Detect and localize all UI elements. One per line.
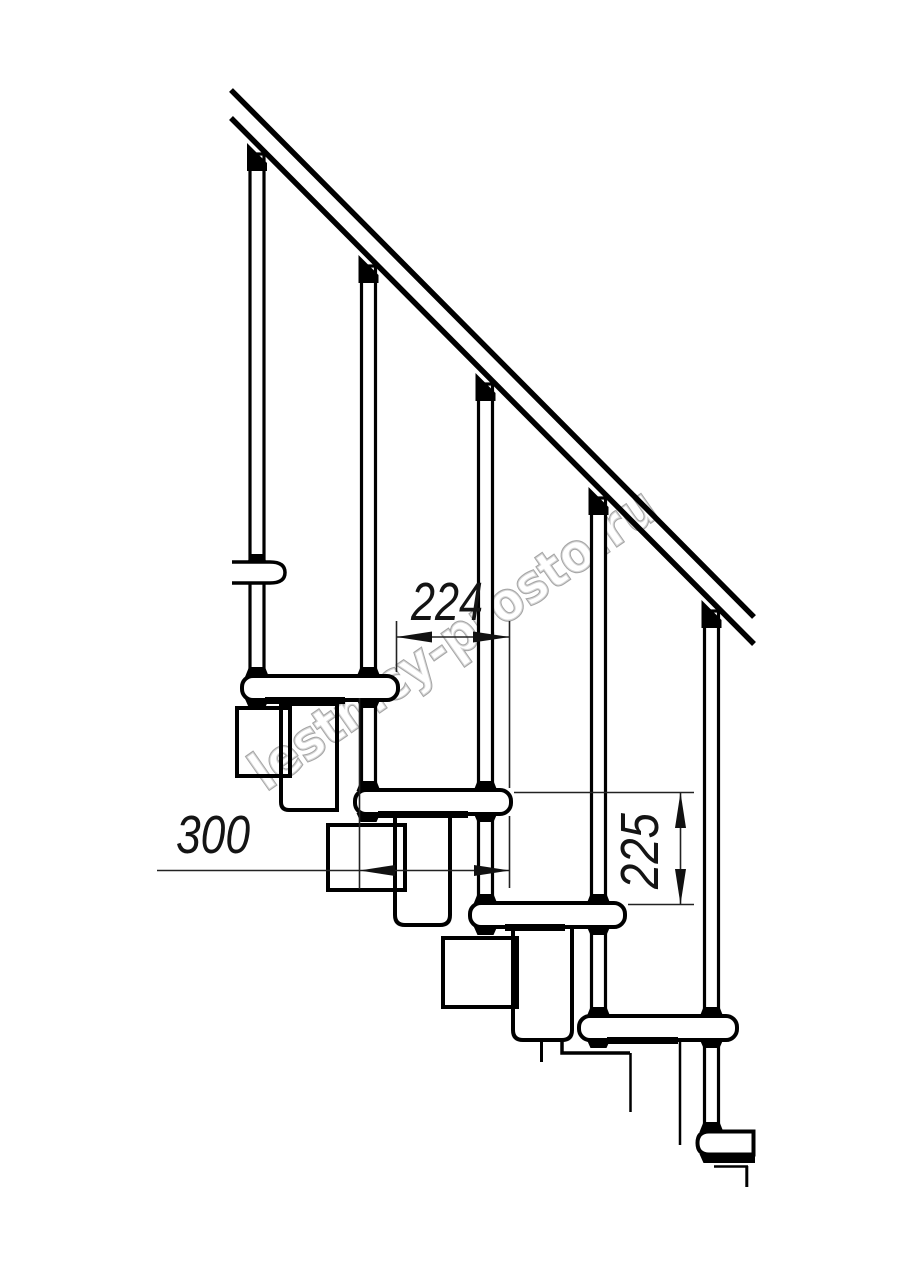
- baluster-collar: [357, 667, 381, 677]
- tread: [579, 1016, 737, 1040]
- bracket-body: [232, 562, 285, 583]
- clamp-nut: [587, 1039, 611, 1048]
- tread-underside: [265, 697, 345, 704]
- baluster: [479, 384, 493, 905]
- tread-underside: [607, 1037, 678, 1044]
- baluster: [705, 611, 719, 1133]
- baluster-collar: [245, 667, 269, 677]
- baluster-collar: [587, 894, 611, 904]
- dimension-rise-label: 225: [610, 812, 670, 890]
- clamp-nut: [700, 1039, 724, 1048]
- baluster-collar: [474, 781, 498, 791]
- baluster-collar: [700, 1007, 724, 1017]
- baluster-collar: [700, 1122, 724, 1132]
- dimension-going-label: 224: [410, 572, 483, 632]
- clamp-nut: [700, 1154, 724, 1163]
- drawing-page: lestnicy-prosto.ru: [0, 0, 914, 1280]
- clamp-nut: [587, 926, 611, 935]
- tread-underside: [505, 924, 565, 931]
- clamp-nut: [474, 926, 498, 935]
- tread: [470, 903, 625, 927]
- baluster: [250, 154, 264, 678]
- baluster: [592, 498, 606, 1018]
- baluster-collar: [474, 894, 498, 904]
- clamp-nut: [245, 699, 269, 708]
- staircase-elevation-drawing: lestnicy-prosto.ru: [0, 0, 914, 1280]
- tread: [355, 790, 511, 814]
- tread-partial: [698, 1132, 754, 1155]
- tread-underside: [378, 811, 468, 818]
- baluster: [362, 266, 376, 792]
- dimension-depth-label: 300: [176, 805, 250, 865]
- baluster-collar: [587, 1007, 611, 1017]
- tread: [242, 676, 398, 700]
- clamp-nut: [474, 813, 498, 822]
